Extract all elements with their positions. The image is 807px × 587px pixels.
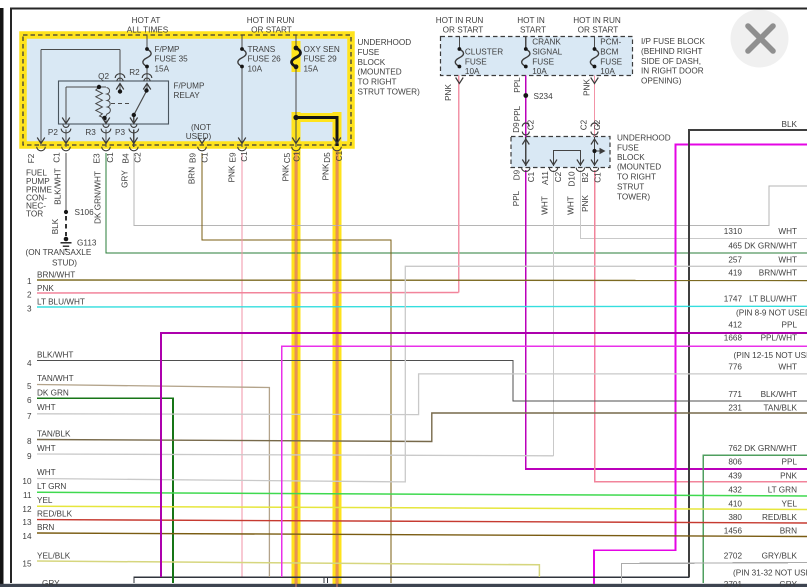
svg-text:UNDERHOOD: UNDERHOOD (617, 134, 671, 143)
svg-text:PPL: PPL (513, 77, 522, 93)
svg-text:RELAY: RELAY (174, 91, 201, 100)
svg-text:D9: D9 (512, 122, 521, 133)
svg-text:TOR: TOR (26, 210, 43, 219)
svg-text:UNDERHOOD: UNDERHOOD (358, 38, 412, 47)
svg-text:HOT IN: HOT IN (517, 16, 545, 25)
svg-text:D5: D5 (323, 152, 332, 163)
svg-text:PCM-: PCM- (600, 38, 621, 47)
svg-text:I/P FUSE BLOCK: I/P FUSE BLOCK (641, 37, 706, 46)
svg-text:PPL: PPL (512, 190, 521, 206)
svg-text:10: 10 (22, 477, 32, 486)
svg-text:YEL/BLK: YEL/BLK (37, 552, 71, 561)
svg-text:7: 7 (27, 412, 32, 421)
svg-text:(PIN 12-15 NOT USED): (PIN 12-15 NOT USED) (734, 351, 807, 360)
svg-text:PNK: PNK (228, 165, 237, 182)
svg-text:(PIN 8-9 NOT USED): (PIN 8-9 NOT USED) (736, 309, 807, 318)
svg-text:B2: B2 (581, 172, 590, 182)
svg-text:BRN/WHT: BRN/WHT (759, 269, 797, 278)
svg-text:R2: R2 (129, 68, 140, 77)
svg-text:PNK: PNK (780, 472, 797, 481)
svg-text:FUSE: FUSE (532, 58, 554, 67)
svg-text:R3: R3 (85, 128, 96, 137)
svg-text:11: 11 (23, 491, 32, 500)
svg-text:IN RIGHT DOOR: IN RIGHT DOOR (641, 67, 704, 76)
svg-text:WHT: WHT (778, 363, 797, 372)
svg-text:YEL: YEL (37, 496, 53, 505)
svg-text:HOT IN RUN: HOT IN RUN (247, 16, 295, 25)
svg-text:2701: 2701 (724, 580, 743, 587)
svg-text:TAN/BLK: TAN/BLK (37, 430, 71, 439)
svg-text:DK GRN/WHT: DK GRN/WHT (94, 171, 103, 224)
svg-text:FUSE: FUSE (600, 58, 622, 67)
svg-text:Q2: Q2 (98, 72, 109, 81)
svg-text:PNK: PNK (444, 84, 453, 101)
svg-text:LT BLU/WHT: LT BLU/WHT (749, 295, 797, 304)
svg-text:BLK: BLK (782, 120, 798, 129)
svg-text:GRY/BLK: GRY/BLK (762, 552, 798, 561)
svg-text:432: 432 (728, 486, 742, 495)
svg-text:TOWER): TOWER) (617, 193, 650, 202)
svg-text:BLK/WHT: BLK/WHT (54, 168, 63, 204)
svg-text:F/PMP: F/PMP (155, 45, 181, 54)
svg-text:C1: C1 (53, 152, 62, 163)
svg-text:C2: C2 (580, 119, 589, 130)
svg-text:YEL: YEL (782, 500, 798, 509)
svg-text:WHT: WHT (37, 444, 56, 453)
svg-text:419: 419 (728, 269, 742, 278)
svg-text:15: 15 (22, 560, 32, 569)
svg-text:G113: G113 (77, 239, 97, 248)
svg-text:BRN: BRN (37, 523, 54, 532)
svg-text:A11: A11 (541, 171, 550, 185)
svg-text:OR START: OR START (251, 26, 292, 35)
svg-text:RED/BLK: RED/BLK (37, 510, 73, 519)
svg-text:10A: 10A (465, 67, 480, 76)
svg-text:PNK: PNK (322, 163, 331, 180)
svg-text:BRN: BRN (780, 527, 797, 536)
svg-text:9: 9 (27, 452, 32, 461)
svg-text:15A: 15A (155, 65, 170, 74)
svg-text:GRY: GRY (779, 580, 797, 587)
svg-text:(NOT: (NOT (191, 123, 211, 132)
svg-text:PNK: PNK (581, 195, 590, 212)
svg-text:OR START: OR START (443, 26, 484, 35)
svg-text:(PIN 31-32 NOT USED): (PIN 31-32 NOT USED) (733, 569, 807, 578)
svg-text:C5: C5 (283, 152, 292, 163)
svg-text:LT BLU/WHT: LT BLU/WHT (37, 298, 85, 307)
svg-text:806: 806 (728, 458, 742, 467)
svg-text:DK GRN/WHT: DK GRN/WHT (744, 444, 797, 453)
svg-text:6: 6 (27, 396, 32, 405)
svg-text:C1: C1 (293, 151, 302, 162)
svg-text:FUSE 26: FUSE 26 (248, 55, 282, 64)
svg-text:14: 14 (22, 532, 32, 541)
svg-text:WHT: WHT (567, 196, 576, 215)
svg-text:FUSE: FUSE (465, 58, 487, 67)
svg-text:STUD): STUD) (52, 259, 77, 268)
svg-text:(ON TRANSAXLE: (ON TRANSAXLE (26, 248, 92, 257)
svg-text:C1: C1 (106, 152, 115, 163)
svg-text:439: 439 (728, 472, 742, 481)
svg-text:WHT: WHT (778, 256, 797, 265)
svg-text:TO RIGHT: TO RIGHT (358, 78, 397, 87)
svg-text:BRN/WHT: BRN/WHT (37, 271, 75, 280)
svg-text:15A: 15A (304, 65, 319, 74)
svg-text:E9: E9 (229, 152, 238, 162)
svg-text:10A: 10A (248, 65, 263, 74)
svg-text:C1: C1 (201, 152, 210, 163)
svg-text:1668: 1668 (724, 334, 743, 343)
svg-text:PPL: PPL (782, 321, 798, 330)
svg-text:S106: S106 (75, 208, 95, 217)
svg-text:3: 3 (27, 305, 32, 314)
svg-text:C2: C2 (593, 119, 602, 130)
svg-text:RED/BLK: RED/BLK (762, 513, 798, 522)
svg-text:C2: C2 (527, 119, 536, 130)
svg-text:WHT: WHT (37, 468, 56, 477)
svg-text:C1: C1 (335, 150, 344, 161)
svg-text:CRANK: CRANK (532, 38, 561, 47)
svg-text:C1: C1 (594, 172, 603, 183)
svg-text:TO RIGHT: TO RIGHT (617, 173, 656, 182)
svg-text:BCM: BCM (600, 48, 618, 57)
svg-text:OPENING): OPENING) (641, 77, 682, 86)
svg-text:ALL TIMES: ALL TIMES (127, 26, 169, 35)
svg-text:FUSE 35: FUSE 35 (155, 55, 189, 64)
svg-text:CLUSTER: CLUSTER (465, 48, 503, 57)
svg-text:HOT AT: HOT AT (132, 16, 161, 25)
svg-text:D10: D10 (568, 171, 577, 186)
svg-text:B4: B4 (122, 153, 131, 163)
svg-text:PNK: PNK (583, 79, 592, 96)
svg-text:412: 412 (728, 321, 742, 330)
svg-text:BLK: BLK (51, 218, 60, 234)
svg-text:GRY: GRY (42, 579, 60, 587)
svg-text:SIDE OF DASH,: SIDE OF DASH, (641, 57, 701, 66)
svg-text:TAN/BLK: TAN/BLK (763, 404, 797, 413)
svg-text:(MOUNTED: (MOUNTED (358, 68, 402, 77)
svg-text:GRY: GRY (121, 170, 130, 188)
svg-text:USED): USED) (186, 132, 212, 141)
svg-text:B9: B9 (189, 153, 198, 163)
svg-text:410: 410 (728, 500, 742, 509)
svg-text:BLOCK: BLOCK (358, 58, 386, 67)
svg-text:10A: 10A (600, 67, 615, 76)
svg-text:C2: C2 (554, 171, 563, 182)
svg-text:C1: C1 (240, 151, 249, 162)
svg-text:FUSE 29: FUSE 29 (304, 55, 338, 64)
svg-text:1310: 1310 (724, 227, 743, 236)
svg-text:762: 762 (728, 444, 742, 453)
svg-text:BRN: BRN (188, 167, 197, 184)
svg-text:5: 5 (27, 382, 32, 391)
svg-text:HOT IN RUN: HOT IN RUN (436, 16, 484, 25)
svg-text:1747: 1747 (724, 295, 743, 304)
svg-text:S234: S234 (534, 92, 554, 101)
svg-text:PNK: PNK (282, 164, 291, 181)
svg-text:1: 1 (27, 277, 32, 286)
svg-text:PPL/WHT: PPL/WHT (761, 334, 797, 343)
svg-text:C1: C1 (527, 171, 536, 182)
svg-text:HOT IN RUN: HOT IN RUN (573, 16, 621, 25)
svg-text:D9: D9 (513, 169, 522, 180)
svg-text:C2: C2 (134, 152, 143, 163)
svg-text:WHT: WHT (541, 196, 550, 215)
svg-text:PPL: PPL (782, 458, 798, 467)
svg-text:257: 257 (728, 256, 742, 265)
svg-text:2702: 2702 (724, 552, 743, 561)
svg-text:START: START (520, 26, 546, 35)
svg-text:PPL: PPL (513, 105, 522, 121)
svg-text:STRUT TOWER): STRUT TOWER) (358, 88, 421, 97)
svg-text:FUSE: FUSE (617, 144, 639, 153)
svg-text:FUSE: FUSE (358, 48, 380, 57)
svg-text:231: 231 (728, 404, 742, 413)
svg-text:(MOUNTED: (MOUNTED (617, 163, 661, 172)
svg-text:F2: F2 (27, 153, 36, 163)
svg-text:LT GRN: LT GRN (768, 486, 797, 495)
svg-text:10A: 10A (532, 67, 547, 76)
svg-text:E3: E3 (93, 153, 102, 163)
svg-text:SIGNAL: SIGNAL (532, 48, 562, 57)
svg-text:776: 776 (728, 363, 742, 372)
svg-text:BLOCK: BLOCK (617, 153, 645, 162)
svg-text:BLK/WHT: BLK/WHT (761, 390, 797, 399)
svg-text:P2: P2 (48, 128, 58, 137)
svg-text:PNK: PNK (37, 284, 54, 293)
svg-text:380: 380 (728, 513, 742, 522)
svg-text:DK GRN: DK GRN (37, 389, 69, 398)
svg-text:WHT: WHT (778, 227, 797, 236)
svg-text:465: 465 (728, 242, 742, 251)
svg-text:TAN/WHT: TAN/WHT (37, 374, 74, 383)
svg-text:F/PUMP: F/PUMP (174, 82, 205, 91)
svg-text:13: 13 (22, 518, 32, 527)
svg-text:TRANS: TRANS (248, 45, 276, 54)
svg-text:DK GRN/WHT: DK GRN/WHT (744, 242, 797, 251)
svg-text:(BEHIND RIGHT: (BEHIND RIGHT (641, 47, 702, 56)
svg-text:BLK/WHT: BLK/WHT (37, 351, 73, 360)
svg-text:WHT: WHT (37, 403, 56, 412)
svg-text:1456: 1456 (724, 527, 743, 536)
svg-text:STRUT: STRUT (617, 183, 644, 192)
svg-text:LT GRN: LT GRN (37, 482, 66, 491)
svg-text:OXY SEN: OXY SEN (304, 45, 340, 54)
svg-text:771: 771 (728, 390, 742, 399)
svg-text:8: 8 (27, 437, 32, 446)
svg-text:4: 4 (27, 359, 32, 368)
svg-text:OR START: OR START (578, 26, 619, 35)
svg-text:2: 2 (27, 291, 32, 300)
svg-text:12: 12 (22, 505, 32, 514)
svg-text:P3: P3 (115, 128, 125, 137)
